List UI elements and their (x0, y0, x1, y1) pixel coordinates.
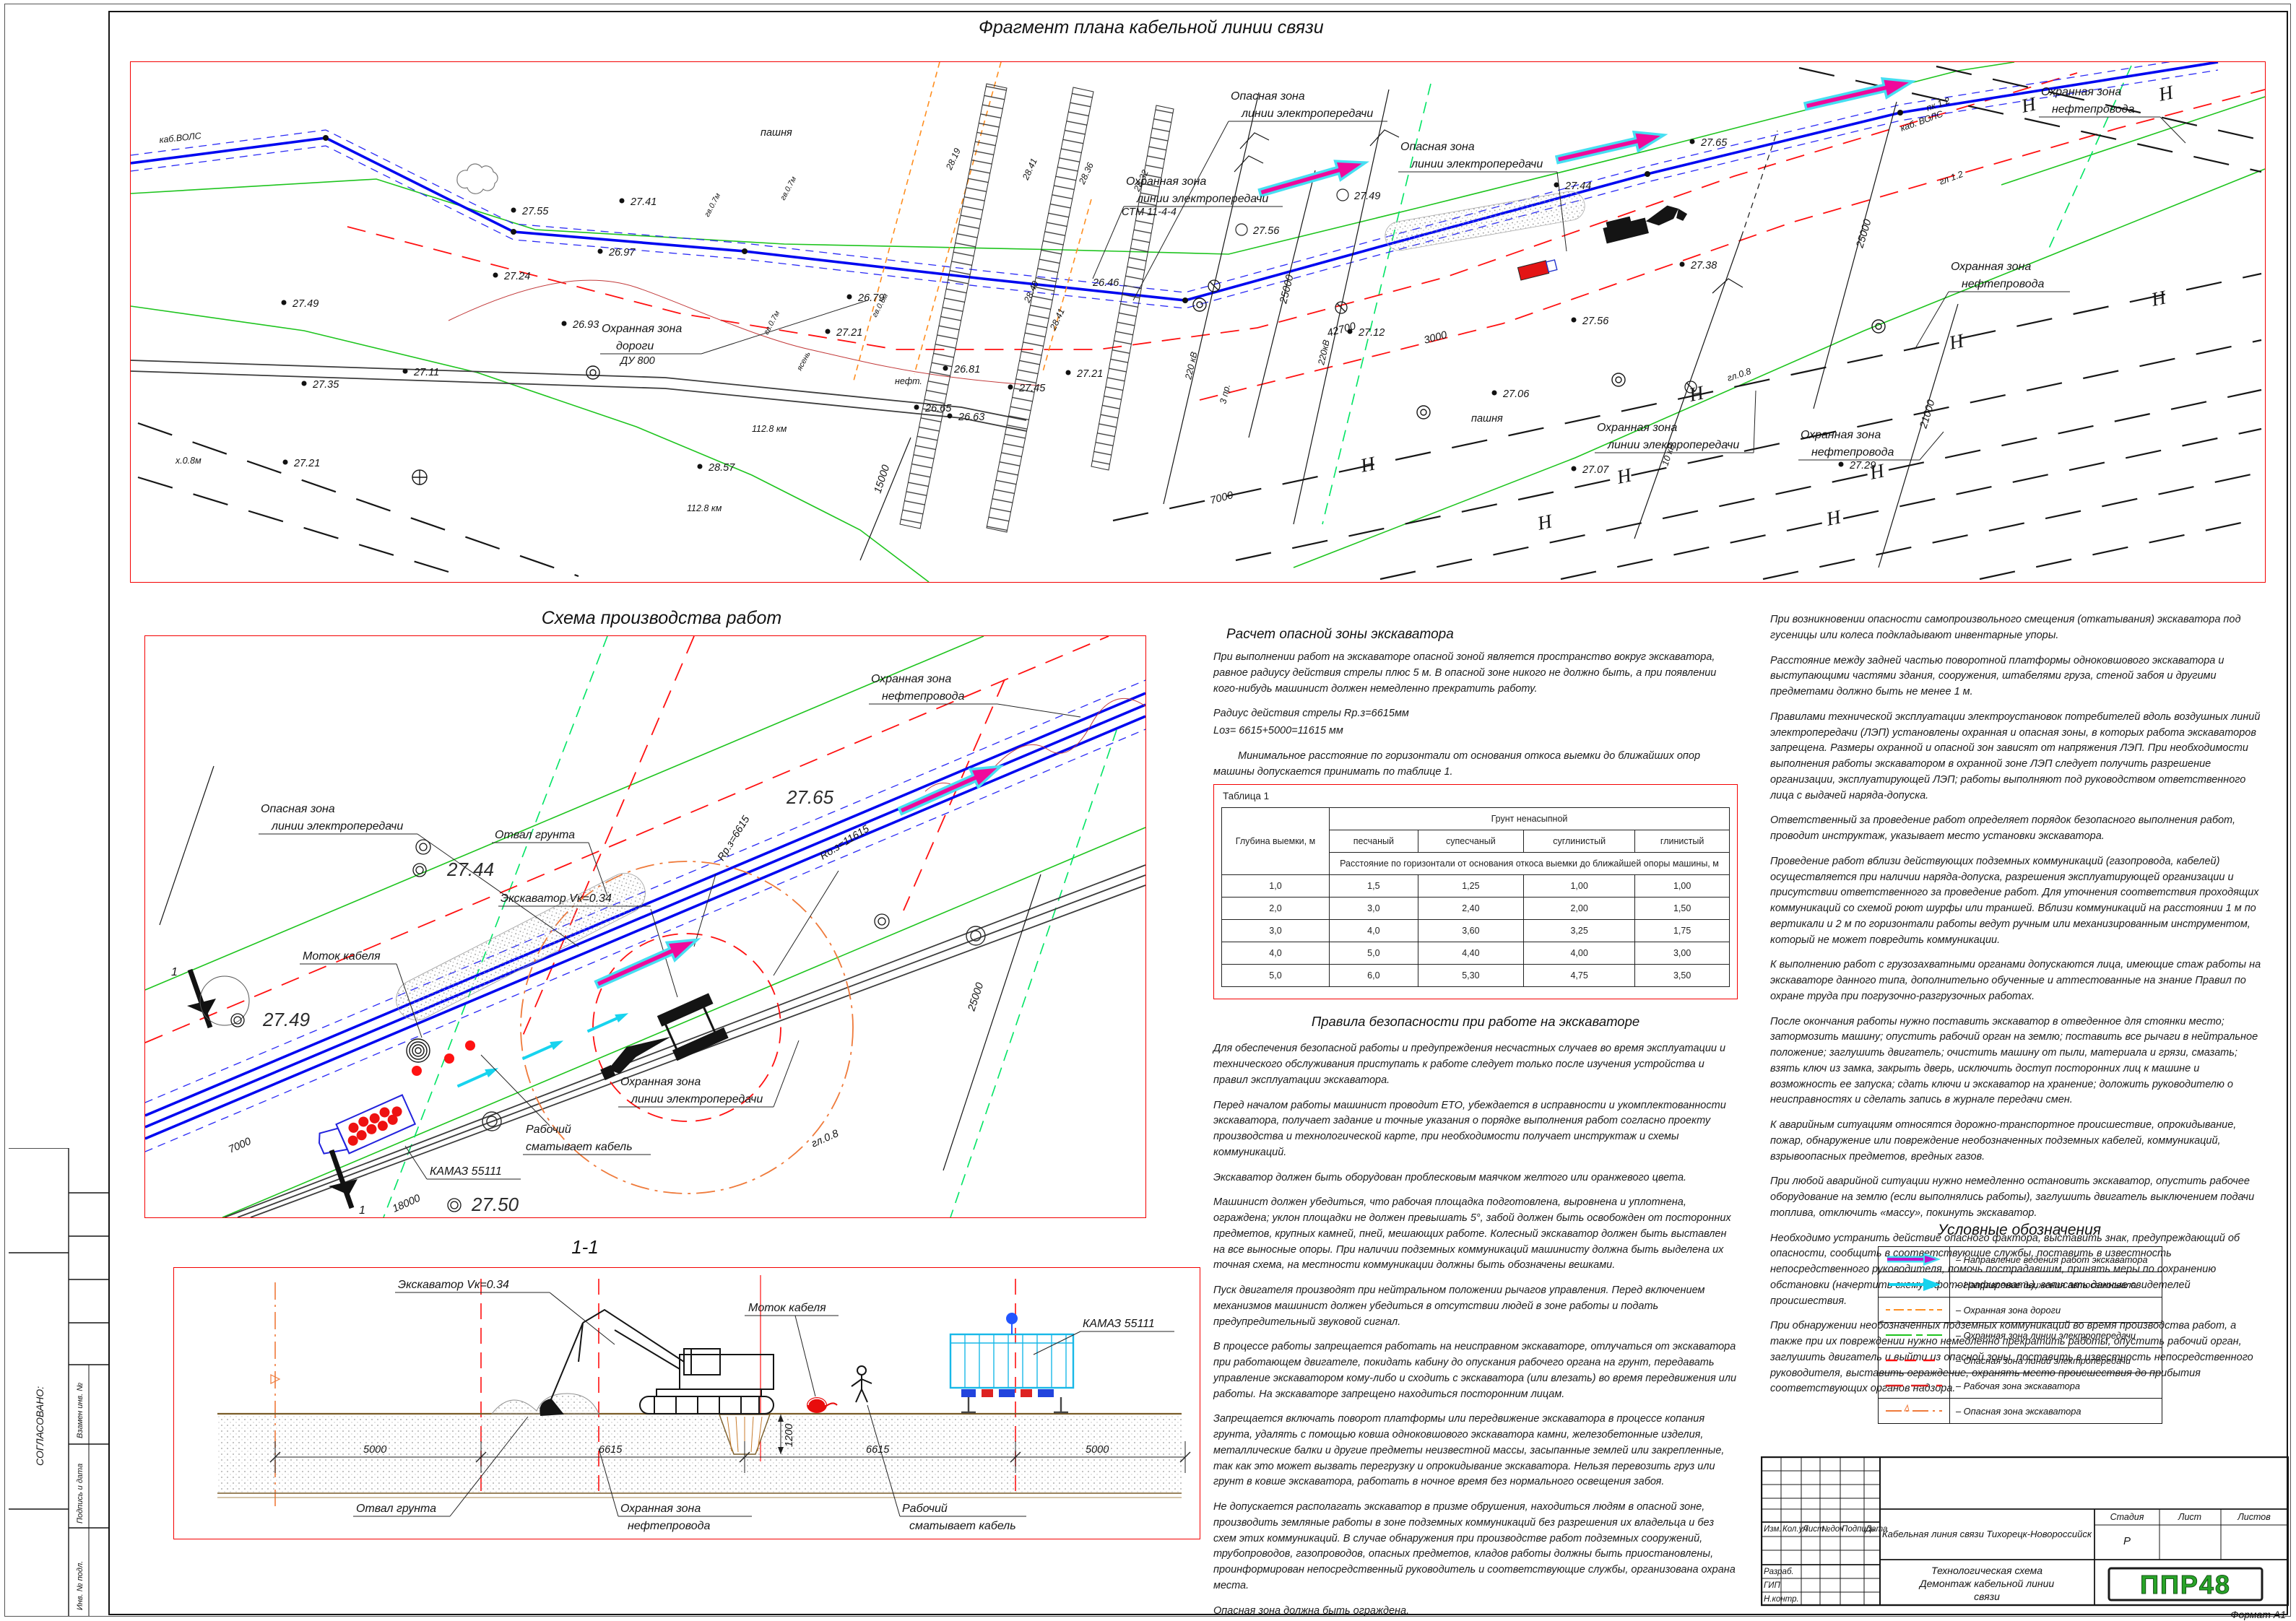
plan-panel: Н Н Н Н Н Н Н Н Н Н (130, 61, 2266, 583)
rules-paragraph: Правилами технической эксплуатации элект… (1770, 710, 2269, 804)
rules-paragraph: Экскаватор должен быть оборудован пробле… (1213, 1170, 1738, 1186)
svg-text:каб.ВОЛС: каб.ВОЛС (159, 131, 202, 145)
strip-cell-label: Подпись и дата (76, 1464, 85, 1524)
calc-paragraph: При выполнении работ на экскаваторе опас… (1213, 650, 1738, 697)
role-label: Разраб. (1764, 1568, 1794, 1576)
stage-header: Лист (2178, 1512, 2201, 1522)
doc-title-line: Демонтаж кабельной линии (1918, 1578, 2055, 1589)
svg-text:27.11: 27.11 (413, 367, 439, 378)
svg-text:27.29: 27.29 (1849, 460, 1876, 471)
table-row: 3,04,0 3,603,25 1,75 (1222, 920, 1730, 942)
svg-text:Опасная зона: Опасная зона (261, 803, 335, 815)
svg-text:28.57: 28.57 (708, 462, 735, 474)
stage-value: Р (2123, 1535, 2131, 1547)
svg-text:нефт.: нефт. (895, 376, 922, 386)
svg-text:Н: Н (1614, 464, 1634, 488)
ppr48-logo: ППР48 (2109, 1568, 2262, 1600)
kamaz-truck-icon (950, 1313, 1073, 1412)
section-panel: 1200 (173, 1267, 1200, 1539)
section-marker: 1 (329, 1150, 365, 1217)
legend-row: – Направление ведения работ экскаватора (1879, 1247, 2162, 1272)
svg-text:1: 1 (359, 1204, 365, 1217)
svg-text:27.21: 27.21 (293, 458, 320, 469)
svg-text:линии электропередачи: линии электропередачи (1607, 439, 1739, 451)
rev-header: №док (1821, 1525, 1844, 1534)
svg-text:5000: 5000 (363, 1444, 386, 1456)
svg-text:Моток кабеля: Моток кабеля (748, 1302, 826, 1314)
svg-text:нефтепровода: нефтепровода (628, 1520, 710, 1532)
svg-text:Н: Н (2019, 92, 2039, 117)
svg-text:нефтепровода: нефтепровода (1811, 446, 1894, 459)
pipeline-H-marks: Н Н Н Н Н Н Н Н Н Н (1358, 81, 2176, 534)
svg-text:Экскаватор Vк=0.34: Экскаватор Vк=0.34 (501, 892, 612, 905)
scheme-road (225, 865, 1145, 1217)
svg-text:1: 1 (171, 966, 178, 978)
benchmark-icon (412, 470, 427, 484)
powerline-protection-zone-icon (1879, 1323, 1950, 1347)
work-direction-arrow-icon (593, 931, 701, 993)
cable-coil-icon (407, 1039, 430, 1062)
plan-drawing: Н Н Н Н Н Н Н Н Н Н (131, 62, 2265, 582)
svg-text:28.41: 28.41 (1021, 157, 1039, 182)
svg-text:27.07: 27.07 (1582, 464, 1609, 476)
svg-text:Охранная зона: Охранная зона (620, 1503, 701, 1515)
excavator-danger-zone-icon (1879, 1399, 1950, 1423)
svg-text:26.46: 26.46 (1092, 277, 1119, 289)
table-row: 2,03,0 2,402,00 1,50 (1222, 898, 1730, 920)
work-direction-arrow-icon (1803, 72, 1915, 116)
stage-header: Листов (2237, 1512, 2271, 1522)
plan-callouts: Опасная зона линии электропередачи Опасн… (600, 86, 2185, 460)
rules-paragraph: Опасная зона должна быть ограждена. (1213, 1604, 1738, 1620)
scheme-title: Схема производства работ (510, 608, 813, 629)
side-strip: СОГЛАСОВАНО: Взамен инв. № Подпись и дат… (6, 1148, 108, 1616)
svg-text:сматывает кабель: сматывает кабель (909, 1520, 1016, 1532)
svg-text:27.06: 27.06 (1502, 388, 1530, 400)
svg-text:пашня: пашня (1471, 413, 1503, 425)
table1-group-header: Грунт ненасыпной (1330, 808, 1730, 830)
svg-text:Опасная зона: Опасная зона (1400, 141, 1475, 153)
table1-col1-header: Глубина выемки, м (1222, 808, 1330, 875)
svg-text:112.8 км: 112.8 км (752, 424, 787, 434)
rules-paragraph: Пуск двигателя производят при нейтрально… (1213, 1283, 1738, 1330)
svg-text:сматывает кабель: сматывает кабель (526, 1141, 633, 1153)
doc-title-line: связи (1974, 1591, 2000, 1602)
legend-row: – Охранная зона линии электропередачи (1879, 1323, 2162, 1348)
svg-text:Н: Н (1535, 510, 1555, 534)
svg-text:1200: 1200 (784, 1424, 795, 1447)
road-protection-zone-icon (1879, 1298, 1950, 1322)
calc-note: Минимальное расстояние по горизонтали от… (1213, 749, 1738, 781)
spoil-area (1383, 189, 1587, 253)
table-row: 4,05,0 4,404,00 3,00 (1222, 942, 1730, 965)
approved-label: СОГЛАСОВАНО: (34, 1386, 46, 1466)
svg-text:27.49: 27.49 (262, 1009, 310, 1030)
svg-text:Охранная зона: Охранная зона (602, 323, 682, 335)
table1-subheader: суглинистый (1524, 830, 1635, 853)
scheme-panel: 25000 7000 18000 гл.0.8 Rр.з=6615 Rо.з=1… (144, 635, 1146, 1218)
svg-text:линии электропередачи: линии электропередачи (631, 1093, 763, 1105)
svg-text:27.44: 27.44 (446, 859, 494, 880)
svg-text:27.41: 27.41 (630, 196, 657, 208)
svg-text:Охранная зона: Охранная зона (1801, 429, 1881, 441)
excavator-work-zone-icon (1879, 1373, 1950, 1398)
scheme-drawing: 25000 7000 18000 гл.0.8 Rр.з=6615 Rо.з=1… (145, 636, 1145, 1217)
work-direction-arrow-icon (896, 757, 1005, 820)
page-title: Фрагмент плана кабельной линии связи (979, 17, 1282, 38)
svg-text:26.93: 26.93 (572, 319, 599, 331)
svg-text:нефтепровода: нефтепровода (2052, 103, 2134, 116)
svg-text:27.49: 27.49 (1353, 191, 1380, 202)
svg-text:26.97: 26.97 (608, 247, 636, 258)
rules-paragraph: Машинист должен убедиться, что рабочая п… (1213, 1195, 1738, 1274)
title-block: Изм. Кол.уч Лист №док Подпись Дата Разра… (1761, 1456, 2289, 1607)
svg-text:27.21: 27.21 (836, 327, 862, 339)
svg-text:Опасная зона: Опасная зона (1231, 90, 1305, 103)
dump-truck-arrow-icon (521, 1037, 566, 1063)
svg-text:3000: 3000 (1423, 329, 1448, 347)
svg-text:27.56: 27.56 (1582, 316, 1609, 327)
svg-text:3 пр.: 3 пр. (1218, 383, 1232, 405)
svg-text:27.35: 27.35 (312, 379, 339, 391)
svg-text:27.12: 27.12 (1358, 327, 1385, 339)
rules-paragraph: Не допускается располагать экскаватор в … (1213, 1500, 1738, 1594)
table1-box: Таблица 1 Глубина выемки, м Грунт ненасы… (1213, 784, 1738, 999)
format-label: Формат А1 (2138, 1609, 2286, 1620)
svg-text:ППР48: ППР48 (2140, 1570, 2231, 1599)
svg-text:гл 1.2: гл 1.2 (1938, 169, 1964, 187)
svg-text:6615: 6615 (599, 1444, 623, 1456)
svg-text:КАМАЗ 55111: КАМАЗ 55111 (430, 1165, 502, 1178)
rules-paragraph: Ответственный за проведение работ опреде… (1770, 813, 2269, 845)
svg-text:линии электропередачи: линии электропередачи (271, 820, 403, 833)
svg-text:пашня: пашня (761, 127, 792, 139)
rules-paragraph: Проведение работ вблизи действующих подз… (1770, 854, 2269, 949)
svg-text:линии электропередачи: линии электропередачи (1241, 108, 1373, 120)
embankment-hatch-bands (900, 84, 1174, 532)
svg-text:нефтепровода: нефтепровода (882, 690, 964, 703)
rules-paragraph: После окончания работы нужно поставить э… (1770, 1014, 2269, 1109)
rules-paragraph: Запрещается включать поворот платформы и… (1213, 1412, 1738, 1490)
powerline-danger-zone-icon (1879, 1348, 1950, 1373)
rules-paragraph: При возникновении опасности самопроизвол… (1770, 612, 2269, 644)
section-callouts: Экскаватор Vк=0.34 Моток кабеля КАМАЗ 55… (353, 1279, 1174, 1532)
strip-cell-label: Взамен инв. № (76, 1383, 85, 1438)
svg-text:27.49: 27.49 (292, 298, 319, 310)
section-drawing: 1200 (174, 1268, 1200, 1539)
svg-text:дороги: дороги (616, 340, 654, 352)
cable-coil-icon (807, 1397, 837, 1413)
role-label: ГИП (1764, 1581, 1780, 1590)
svg-text:Отвал грунта: Отвал грунта (495, 829, 575, 841)
dump-truck-direction-arrow-icon (1879, 1272, 1950, 1297)
svg-text:Н: Н (2149, 286, 2169, 310)
svg-text:ДУ 800: ДУ 800 (619, 355, 655, 367)
work-direction-arrow-icon (1555, 126, 1666, 170)
rules-paragraph: Перед началом работы машинист проводит Е… (1213, 1098, 1738, 1161)
svg-text:21000: 21000 (1918, 399, 1937, 430)
svg-text:Н: Н (2156, 81, 2176, 105)
svg-text:Н: Н (1358, 452, 1378, 477)
rules-paragraph: Для обеспечения безопасной работы и пред… (1213, 1041, 1738, 1088)
svg-text:27.50: 27.50 (471, 1194, 519, 1215)
svg-text:Экскаватор Vк=0.34: Экскаватор Vк=0.34 (398, 1279, 509, 1291)
legend: – Направление ведения работ экскаватора … (1878, 1246, 2162, 1424)
drawing-sheet: Фрагмент плана кабельной линии связи (0, 0, 2296, 1621)
svg-text:25000: 25000 (1278, 274, 1296, 305)
rules-paragraph: К выполнению работ с грузозахватными орг… (1770, 957, 2269, 1004)
table1-subheader: глинистый (1635, 830, 1730, 853)
svg-text:линии электропередачи: линии электропередачи (1136, 193, 1268, 205)
soil-distance-table: Глубина выемки, м Грунт ненасыпной песча… (1221, 807, 1730, 987)
svg-text:гл.0.8: гл.0.8 (810, 1128, 840, 1150)
rules-paragraph: Расстояние между задней частью поворотно… (1770, 653, 2269, 700)
powerline-protection-zone-lines (131, 62, 2265, 582)
svg-text:х.0.8м: х.0.8м (175, 456, 202, 466)
svg-text:27.65: 27.65 (1700, 137, 1728, 149)
svg-text:гв.0.7м: гв.0.7м (762, 310, 781, 336)
svg-text:18000: 18000 (391, 1193, 422, 1215)
tree-cloud-icon (457, 164, 498, 194)
rev-header: Изм. (1764, 1525, 1782, 1534)
table1-subheader: супесчаный (1418, 830, 1523, 853)
stage-header: Стадия (2110, 1512, 2144, 1522)
svg-text:27.55: 27.55 (521, 206, 549, 217)
calc-title: Расчет опасной зоны экскаватора (1226, 627, 1738, 643)
table-row: 5,06,0 5,304,75 3,50 (1222, 965, 1730, 987)
table1-note: Расстояние по горизонтали от основания о… (1330, 853, 1730, 875)
svg-text:Н: Н (1824, 505, 1844, 530)
svg-text:гл.0.8: гл.0.8 (1726, 366, 1753, 383)
svg-text:КАМАЗ 55111: КАМАЗ 55111 (1083, 1318, 1155, 1330)
svg-text:25000: 25000 (966, 981, 986, 1013)
svg-text:Рабочий: Рабочий (902, 1503, 948, 1515)
svg-text:27.65: 27.65 (786, 786, 834, 808)
svg-text:42700: 42700 (1326, 321, 1357, 339)
legend-row: – Опасная зона линии электропередачи (1879, 1348, 2162, 1373)
svg-text:26.63: 26.63 (958, 412, 984, 423)
section-marker: 1 (171, 966, 249, 1027)
legend-row: – Охранная зона дороги (1879, 1298, 2162, 1323)
project-name: Кабельная линия связи Тихорецк-Новоросси… (1882, 1529, 2092, 1539)
legend-row: – Опасная зона экскаватора (1879, 1399, 2162, 1423)
truck-icon (1517, 258, 1557, 280)
svg-text:220 кВ: 220 кВ (1183, 351, 1200, 381)
svg-text:27.45: 27.45 (1018, 383, 1046, 394)
work-direction-arrow-icon (1879, 1247, 1950, 1272)
svg-text:6615: 6615 (866, 1444, 890, 1456)
worker-icon (852, 1366, 872, 1402)
svg-text:Рабочий: Рабочий (526, 1124, 571, 1136)
work-direction-arrow-icon (1257, 153, 1369, 202)
road-lines (131, 360, 1026, 576)
calc-loz: Lоз= 6615+5000=11615 мм (1213, 723, 1738, 739)
svg-text:Охранная зона: Охранная зона (871, 673, 951, 685)
legend-row: – Рабочая зона экскаватора (1879, 1373, 2162, 1399)
svg-text:25000: 25000 (1854, 218, 1873, 250)
svg-text:26.79: 26.79 (857, 292, 884, 304)
svg-text:26.81: 26.81 (953, 364, 980, 375)
excavator-icon (1601, 201, 1689, 244)
svg-text:СТМ 11-4-4: СТМ 11-4-4 (1122, 207, 1177, 218)
svg-text:7000: 7000 (227, 1136, 253, 1156)
power-line-crossings: 220 кВ 3 пр. 220кВ 10 кВ (1164, 90, 1777, 539)
svg-text:7000: 7000 (1209, 490, 1234, 507)
svg-text:Моток кабеля: Моток кабеля (303, 950, 381, 962)
legend-row: – Направление движения автосамосвала (1879, 1272, 2162, 1298)
table1-subheader: песчаный (1330, 830, 1418, 853)
strip-cell-label: Инв. № подл. (76, 1561, 85, 1610)
calc-and-rules-column: Расчет опасной зоны экскаватора При выпо… (1213, 627, 1738, 1621)
legend-title: Условные обозначения (1878, 1222, 2161, 1239)
rules-title: Правила безопасности при работе на экска… (1213, 1014, 1738, 1030)
svg-text:27.21: 27.21 (1076, 368, 1103, 380)
role-label: Н.контр. (1764, 1595, 1799, 1604)
table1-caption: Таблица 1 (1223, 791, 1730, 801)
section-view-title: 1-1 (513, 1236, 657, 1259)
svg-text:26.65: 26.65 (924, 403, 952, 414)
svg-text:линии электропередачи: линии электропередачи (1411, 158, 1543, 170)
table-row: 1,01,5 1,251,00 1,00 (1222, 875, 1730, 898)
svg-text:27.56: 27.56 (1252, 225, 1280, 237)
svg-text:Отвал грунта: Отвал грунта (356, 1503, 436, 1515)
rules-paragraph: При любой аварийной ситуации нужно немед… (1770, 1174, 2269, 1221)
svg-text:112.8 км: 112.8 км (687, 503, 722, 513)
svg-text:ясень: ясень (795, 350, 813, 373)
ground (217, 1414, 1182, 1498)
svg-text:28.19: 28.19 (944, 147, 963, 172)
svg-text:гв.0.7м: гв.0.7м (703, 192, 722, 219)
svg-text:Охранная зона: Охранная зона (2041, 86, 2121, 98)
rules-paragraph: К аварийным ситуациям относятся дорожно-… (1770, 1118, 2269, 1165)
svg-text:Охранная зона: Охранная зона (620, 1076, 701, 1088)
dump-truck-arrow-icon (586, 1009, 631, 1035)
svg-text:Охранная зона: Охранная зона (1597, 422, 1677, 434)
svg-text:гв.0.7м: гв.0.7м (779, 175, 798, 202)
svg-text:Охранная зона: Охранная зона (1951, 261, 2031, 273)
svg-text:27.38: 27.38 (1690, 260, 1717, 271)
svg-text:нефтепровода: нефтепровода (1962, 278, 2044, 290)
svg-text:27.44: 27.44 (1564, 181, 1591, 192)
doc-title-line: Технологическая схема (1931, 1565, 2042, 1576)
calc-radius: Радиус действия стрелы Rр.з=6615мм (1213, 706, 1738, 722)
svg-text:27.24: 27.24 (503, 271, 530, 282)
svg-text:Rр.з=6615: Rр.з=6615 (716, 813, 753, 863)
rules-paragraph: В процессе работы запрещается работать н… (1213, 1339, 1738, 1402)
spoil-heap (389, 866, 652, 1027)
svg-text:5000: 5000 (1086, 1444, 1109, 1456)
